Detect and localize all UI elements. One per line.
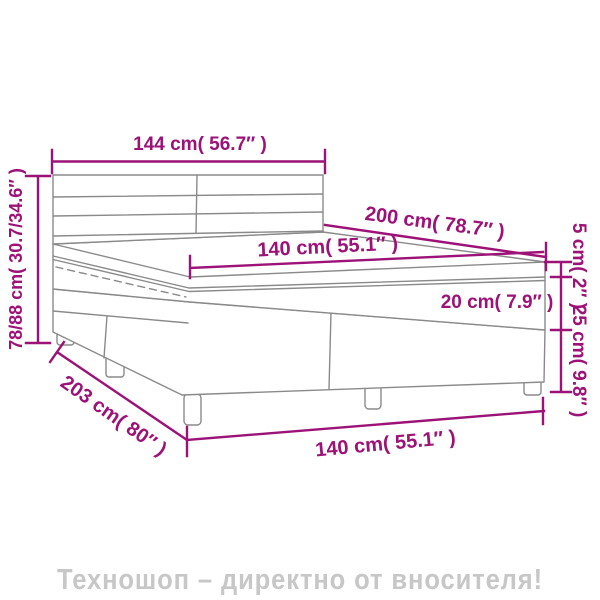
headboard — [53, 175, 323, 244]
leg-front-left — [184, 394, 201, 425]
dim-headboard-width: 144 cm( 56.7″ ) — [52, 134, 325, 173]
dim-line-headboard-height — [26, 176, 50, 343]
dim-label-headboard-width: 144 cm( 56.7″ ) — [133, 134, 267, 155]
headboard-center-seam — [196, 175, 197, 233]
dim-headboard-height: 78/88 cm( 30.7/34.6″ ) — [6, 168, 50, 350]
dim-label-mattress-thickness: 20 cm( 7.9″ ) — [441, 292, 554, 313]
dim-label-base-height: 25 cm( 9.8″ ) — [568, 305, 589, 418]
dim-label-headboard-height: 78/88 cm( 30.7/34.6″ ) — [6, 168, 26, 350]
bed-diagram-svg: 144 cm( 56.7″ ) 78/88 cm( 30.7/34.6″ ) 2… — [0, 0, 600, 600]
dim-line-height-stack — [545, 262, 571, 392]
dim-label-topper-thickness: 5 cm( 2″ ) — [568, 223, 589, 309]
product-dimension-diagram: 144 cm( 56.7″ ) 78/88 cm( 30.7/34.6″ ) 2… — [0, 0, 600, 600]
dim-height-stack: 5 cm( 2″ ) 25 cm( 9.8″ ) — [545, 223, 589, 417]
watermark-text: Техношоп – директно от вносителя! — [57, 564, 543, 596]
dim-label-base-width: 140 cm( 55.1″ ) — [314, 427, 456, 462]
